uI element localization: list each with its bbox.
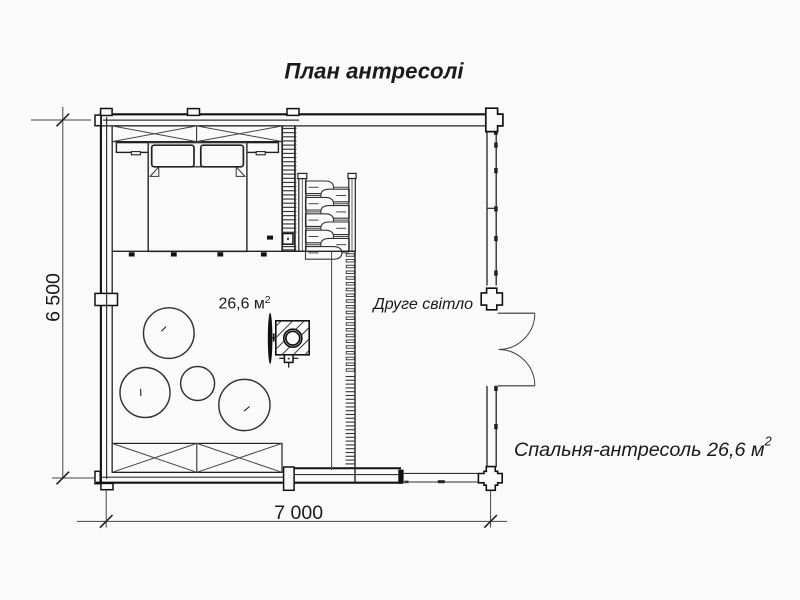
svg-text:26,6 м2: 26,6 м2 [219, 294, 271, 313]
svg-text:План антресолі: План антресолі [284, 59, 464, 84]
svg-text:7 000: 7 000 [274, 502, 323, 524]
svg-text:6 500: 6 500 [43, 273, 65, 322]
svg-text:Друге світло: Друге світло [372, 296, 474, 313]
